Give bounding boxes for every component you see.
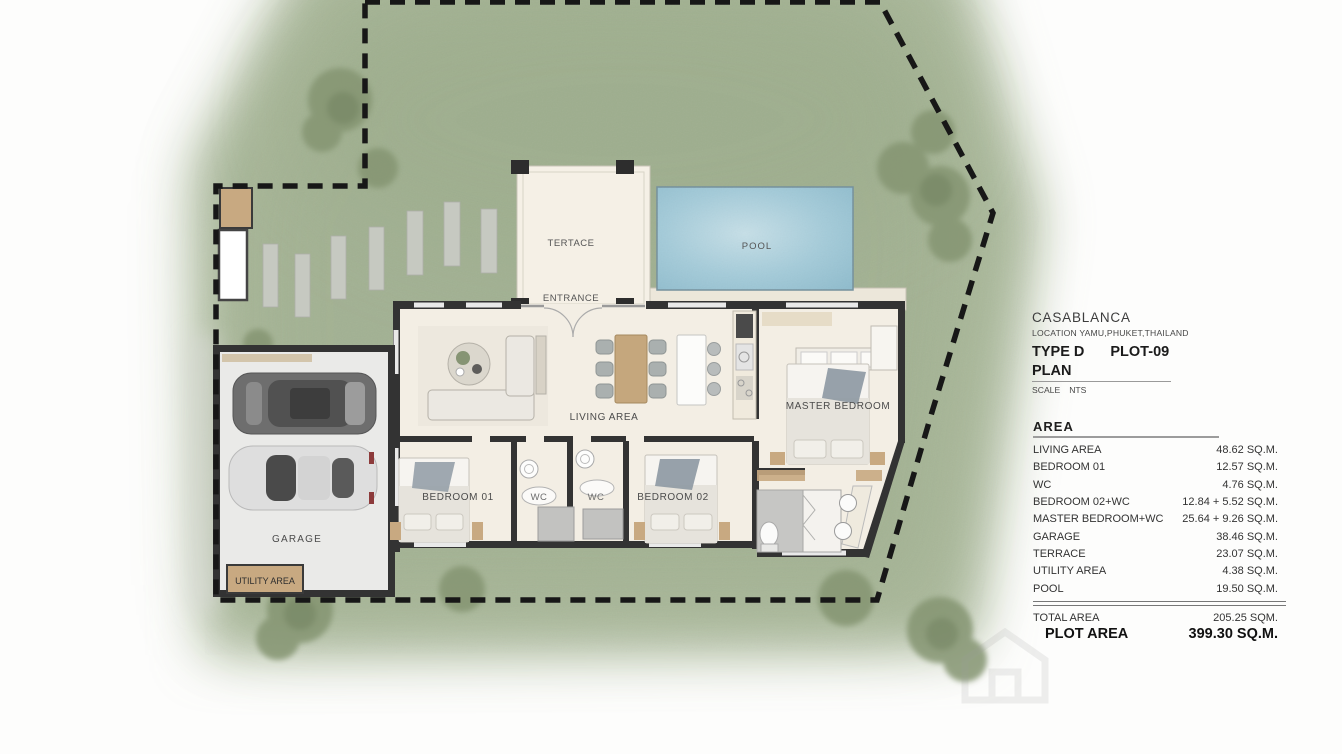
plot-area-value: 399.30 SQ.M. bbox=[1189, 626, 1278, 642]
garage bbox=[213, 345, 395, 597]
scale-label: SCALE bbox=[1032, 385, 1060, 395]
area-row-label: BEDROOM 01 bbox=[1033, 461, 1105, 473]
area-row-label: MASTER BEDROOM+WC bbox=[1033, 513, 1163, 525]
area-row: BEDROOM 0112.57 SQ.M. bbox=[1033, 459, 1278, 476]
living-area-label: LIVING AREA bbox=[570, 412, 639, 423]
garage-label: GARAGE bbox=[272, 534, 322, 545]
area-header-underline bbox=[1033, 436, 1219, 438]
pool bbox=[657, 187, 853, 290]
total-area-value: 205.25 SQM. bbox=[1213, 612, 1278, 624]
area-row-value: 4.38 SQ.M. bbox=[1222, 565, 1278, 577]
car-silver bbox=[229, 446, 377, 510]
area-row: GARAGE38.46 SQ.M. bbox=[1033, 528, 1278, 545]
entrance-label: ENTRANCE bbox=[543, 293, 599, 304]
title-block: CASABLANCA LOCATION YAMU,PHUKET,THAILAND… bbox=[1032, 310, 1302, 395]
type-plot-row: TYPE D PLOT-09 bbox=[1032, 344, 1302, 360]
scale-row: SCALE NTS bbox=[1032, 385, 1302, 395]
bedroom-02-label: BEDROOM 02 bbox=[637, 492, 709, 503]
area-row-value: 12.57 SQ.M. bbox=[1216, 461, 1278, 473]
project-name: CASABLANCA bbox=[1032, 310, 1302, 325]
garage-counter bbox=[222, 354, 312, 362]
terrace bbox=[511, 160, 650, 312]
area-row-value: 23.07 SQ.M. bbox=[1216, 548, 1278, 560]
plot-label: PLOT-09 bbox=[1110, 344, 1169, 360]
pool-label: POOL bbox=[742, 241, 772, 252]
terrace-label: TERTACE bbox=[548, 238, 595, 249]
master-bedroom-label: MASTER BEDROOM bbox=[786, 401, 891, 412]
area-row-label: BEDROOM 02+WC bbox=[1033, 496, 1130, 508]
drawing-title: PLAN bbox=[1032, 363, 1302, 379]
total-area-row: TOTAL AREA 205.25 SQM. bbox=[1033, 612, 1278, 624]
kitchen-counter bbox=[733, 311, 756, 419]
site-plan-canvas: TERTACE ENTRANCE POOL LIVING AREA MASTER… bbox=[0, 0, 1342, 754]
area-row-value: 12.84 + 5.52 SQ.M. bbox=[1182, 496, 1278, 508]
area-row: LIVING AREA48.62 SQ.M. bbox=[1033, 442, 1278, 459]
area-row: UTILITY AREA4.38 SQ.M. bbox=[1033, 563, 1278, 580]
dining-table bbox=[615, 335, 647, 403]
area-row: TERRACE23.07 SQ.M. bbox=[1033, 545, 1278, 562]
type-label: TYPE D bbox=[1032, 344, 1084, 360]
area-row-label: UTILITY AREA bbox=[1033, 565, 1106, 577]
scale-value: NTS bbox=[1069, 385, 1086, 395]
plan-underline bbox=[1032, 381, 1171, 382]
island-stools bbox=[708, 343, 721, 396]
area-row-value: 48.62 SQ.M. bbox=[1216, 444, 1278, 456]
bedroom-01-label: BEDROOM 01 bbox=[422, 492, 494, 503]
gate-structure bbox=[219, 188, 252, 300]
utility-area-label: UTILITY AREA bbox=[235, 576, 295, 586]
area-row-label: WC bbox=[1033, 479, 1051, 491]
total-area-label: TOTAL AREA bbox=[1033, 612, 1099, 624]
kitchen-island bbox=[677, 335, 706, 405]
wc-left-label: WC bbox=[531, 492, 548, 503]
totals-divider bbox=[1033, 601, 1286, 606]
area-row-label: TERRACE bbox=[1033, 548, 1086, 560]
area-row-value: 4.76 SQ.M. bbox=[1222, 479, 1278, 491]
area-row-label: POOL bbox=[1033, 583, 1064, 595]
area-row: MASTER BEDROOM+WC25.64 + 9.26 SQ.M. bbox=[1033, 511, 1278, 528]
car-dark bbox=[233, 373, 376, 434]
area-row-value: 38.46 SQ.M. bbox=[1216, 531, 1278, 543]
wc-right-label: WC bbox=[588, 492, 605, 503]
area-row-label: LIVING AREA bbox=[1033, 444, 1101, 456]
area-table: AREA LIVING AREA48.62 SQ.M. BEDROOM 0112… bbox=[1033, 419, 1289, 642]
project-location: LOCATION YAMU,PHUKET,THAILAND bbox=[1032, 328, 1302, 338]
coffee-table bbox=[448, 343, 490, 385]
area-row: POOL19.50 SQ.M. bbox=[1033, 580, 1278, 597]
area-row: BEDROOM 02+WC12.84 + 5.52 SQ.M. bbox=[1033, 493, 1278, 510]
area-row-value: 19.50 SQ.M. bbox=[1216, 583, 1278, 595]
area-row-label: GARAGE bbox=[1033, 531, 1080, 543]
area-row-value: 25.64 + 9.26 SQ.M. bbox=[1182, 513, 1278, 525]
plot-area-label: PLOT AREA bbox=[1033, 626, 1128, 642]
area-table-header: AREA bbox=[1033, 419, 1289, 434]
area-row: WC4.76 SQ.M. bbox=[1033, 476, 1278, 493]
plot-area-row: PLOT AREA 399.30 SQ.M. bbox=[1033, 626, 1278, 642]
